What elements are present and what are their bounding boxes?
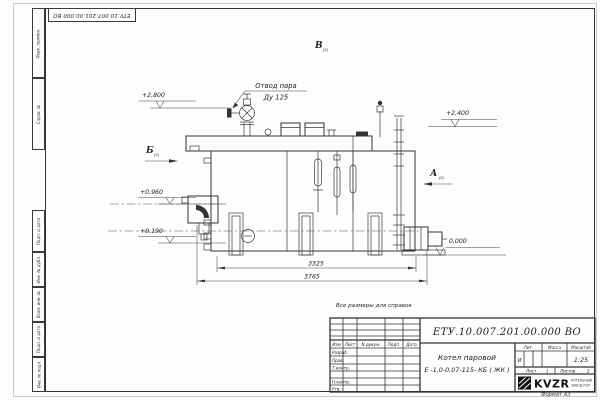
logo-kvzr: KVZR	[534, 378, 570, 391]
svg-text:Масса: Масса	[548, 345, 562, 350]
tb-lit-mass-scale: Лит. Масса Масштаб И 1:25	[518, 345, 592, 364]
svg-text:1: 1	[546, 369, 549, 374]
format-label: Формат А3	[541, 392, 571, 398]
svg-text:Изм: Изм	[332, 342, 340, 347]
svg-text:Утв.: Утв.	[332, 387, 341, 392]
svg-text:КОТЕЛЬНЫЙ: КОТЕЛЬНЫЙ	[571, 378, 593, 383]
svg-text:Т.контр.: Т.контр.	[332, 366, 350, 371]
title-block: ЕТУ.10.007.201.00.000 ВО Котел паровой Е…	[0, 0, 600, 400]
tb-product-name-2: Е -1,0-0,07-115- КБ ( ЖК )	[424, 366, 509, 374]
svg-text:И: И	[518, 358, 522, 364]
svg-text:2: 2	[587, 369, 590, 374]
reference-note: Все размеры для справок	[336, 303, 412, 309]
svg-text:Разраб.: Разраб.	[332, 350, 348, 355]
tb-column-headers: Изм Лист N докум. Подп. Дата	[332, 342, 417, 347]
svg-text:Листов: Листов	[559, 369, 576, 374]
svg-text:Масштаб: Масштаб	[571, 345, 591, 350]
svg-text:Лист: Лист	[525, 369, 537, 374]
tb-scale-value: 1:25	[574, 356, 588, 364]
svg-text:Н.контр.: Н.контр.	[332, 380, 350, 385]
svg-text:Лист: Лист	[344, 342, 356, 347]
tb-sheet-row: Лист 1 Листов 2	[525, 369, 590, 374]
tb-doc-number: ЕТУ.10.007.201.00.000 ВО	[432, 327, 581, 338]
svg-text:N докум.: N докум.	[362, 342, 381, 347]
tb-product-name-1: Котел паровой	[438, 353, 496, 362]
svg-text:Дата: Дата	[405, 342, 417, 347]
svg-text:Лит.: Лит.	[523, 345, 533, 350]
svg-text:Пров.: Пров.	[332, 358, 344, 363]
svg-text:Подп.: Подп.	[388, 342, 400, 347]
svg-text:ЗАВОД РЭП: ЗАВОД РЭП	[571, 384, 591, 388]
tb-company-logo: KVZR КОТЕЛЬНЫЙ ЗАВОД РЭП	[518, 377, 593, 391]
